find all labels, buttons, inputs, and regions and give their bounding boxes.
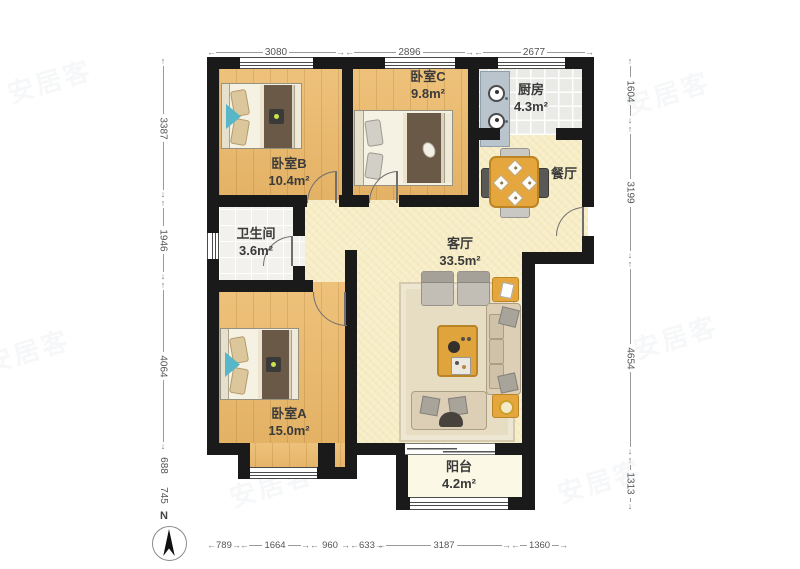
sliding-door-balcony	[405, 443, 495, 455]
room-label-bedroomC: 卧室C9.8m²	[410, 69, 445, 103]
sofa-cushion	[489, 339, 504, 364]
tv-panel-icon	[266, 357, 281, 372]
bed-bench	[291, 330, 298, 399]
room-label-bathroom: 卫生间3.6m²	[236, 226, 275, 260]
cup-icon	[461, 337, 465, 341]
room-label-bedroomA: 卧室A15.0m²	[268, 406, 309, 440]
armchair	[421, 271, 454, 306]
wall-pillar	[318, 443, 335, 473]
room-label-balcony: 阳台4.2m²	[442, 459, 476, 493]
wall-living-bottom-right	[495, 443, 528, 455]
pillow	[364, 119, 383, 147]
sofa-pillow	[420, 396, 441, 417]
wall-kitchen-bottom-left	[479, 128, 500, 140]
dimension-segment: 688	[156, 451, 170, 480]
dining-table	[489, 156, 539, 208]
plate-icon	[507, 190, 524, 207]
tv-panel-icon	[269, 109, 284, 124]
bed-bench	[444, 113, 452, 183]
teapot-icon	[448, 341, 460, 353]
side-table	[492, 277, 519, 302]
sofa	[486, 303, 521, 395]
watermark: 安居客	[628, 306, 722, 367]
dimension-chain-right: ↑1604↓ ↑3199↓ ↑4654↓ ↑1313↓	[622, 57, 638, 511]
dimension-segment: ←3080→	[207, 45, 345, 59]
stove-knob	[505, 120, 508, 123]
north-compass-icon	[152, 526, 187, 561]
coffee-table	[437, 325, 478, 377]
dimension-segment: ↑1946↓	[156, 199, 170, 281]
dimension-segment: ←2896→	[345, 45, 474, 59]
floor-plan: 安居客 安居客 安居客 安居客 安居客 安居客	[0, 0, 800, 569]
dimension-segment: ↑3387↓	[156, 57, 170, 199]
dimension-segment: ←789→	[207, 538, 240, 552]
tv-bench	[411, 391, 487, 430]
watermark: 安居客	[0, 320, 75, 381]
door-leaf-bedroomA	[344, 292, 346, 326]
door-leaf-bedroomC	[396, 171, 398, 203]
wall-bedroomA-top-left	[207, 280, 313, 292]
dimension-segment: ←633→	[350, 538, 377, 552]
window-bedroomA	[250, 467, 317, 479]
stove-burner-icon	[488, 85, 505, 102]
dimension-segment: ←2677→	[474, 45, 594, 59]
dimension-segment: ↑4654↓	[623, 260, 637, 456]
room-label-bedroomB: 卧室B10.4m²	[268, 156, 309, 190]
dimension-segment: ←1360→	[511, 538, 568, 552]
door-leaf-bathroom	[291, 236, 293, 266]
wall-bedrooms-bottom-1	[207, 195, 307, 207]
plate-icon	[493, 175, 510, 192]
window-balcony	[410, 497, 508, 510]
dimension-segment: ↑1313↓	[623, 456, 637, 511]
dimension-chain-top: ←3080→ ←2896→ ←2677→	[207, 45, 594, 59]
dimension-segment: 745	[156, 480, 170, 511]
bed-quilt	[403, 113, 444, 183]
north-arrow-icon	[160, 529, 178, 556]
tray-icon	[451, 357, 471, 375]
dimension-segment: ←3187→	[377, 538, 511, 552]
room-label-kitchen: 厨房4.3m²	[514, 82, 548, 116]
side-table	[492, 394, 519, 418]
dimension-chain-bottom: ←789→ ←1664→ ←960→ ←633→ ←3187→ ←1360→	[207, 538, 568, 552]
dimension-segment: ←1664→	[240, 538, 310, 552]
dimension-segment: ↑4064↓	[156, 281, 170, 451]
door-leaf-bedroomB	[335, 171, 337, 203]
dimension-segment: ↑1604↓	[623, 57, 637, 125]
decor-icon	[420, 140, 438, 160]
bowl-icon	[499, 400, 514, 415]
watermark: 安居客	[2, 50, 96, 111]
dimension-chain-left: ↑3387↓ ↑1946↓ ↑4064↓ 688 745	[155, 57, 171, 511]
dimension-segment: ↑3199↓	[623, 125, 637, 260]
dimension-segment: ←960→	[310, 538, 350, 552]
cup-icon	[467, 337, 471, 341]
window-bathroom	[207, 233, 219, 259]
bed-headboard	[355, 111, 364, 185]
wall-right-lower	[522, 252, 535, 510]
bed-bedroomA	[220, 328, 299, 400]
stove-knob	[505, 97, 508, 100]
wall-bedroomB-C	[342, 69, 353, 200]
door-leaf-entrance	[582, 207, 584, 236]
room-label-living: 客厅33.5m²	[439, 236, 480, 270]
armchair	[457, 271, 490, 306]
tv-icon	[439, 412, 463, 427]
plate-icon	[507, 160, 524, 177]
room-label-dining: 餐厅	[551, 166, 577, 183]
bed-bedroomB	[221, 83, 302, 149]
bed-bedroomC	[354, 110, 453, 186]
wall-bedrooms-bottom-3	[399, 195, 479, 207]
wall-bathroom-right-upper	[293, 195, 305, 236]
paper-icon	[500, 282, 515, 299]
wall-bedrooms-bottom-2	[339, 195, 369, 207]
bed-bench	[294, 85, 301, 148]
north-label: N	[160, 510, 168, 522]
wall-kitchen-bottom-right	[556, 128, 594, 140]
plate-icon	[521, 175, 538, 192]
sofa-pillow	[497, 372, 518, 393]
wall-bedroomC-kitchen	[468, 69, 479, 200]
